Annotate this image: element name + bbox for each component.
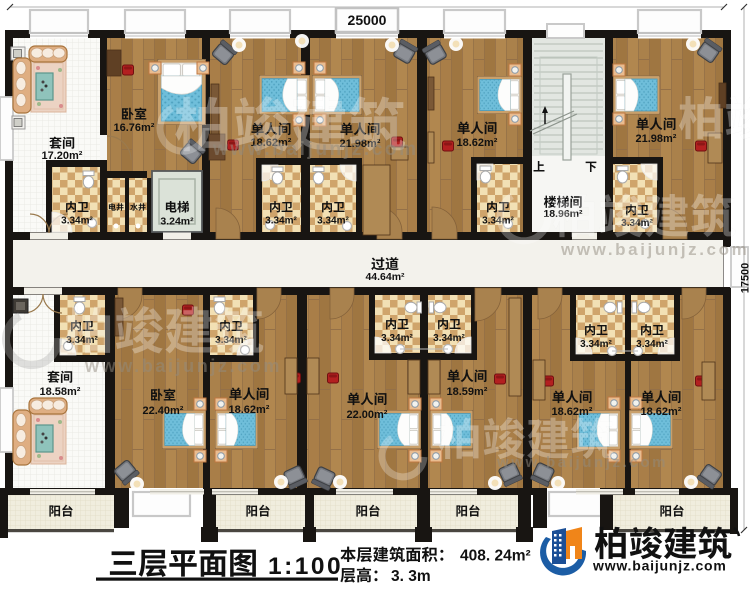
svg-text:www.baijunjz.com: www.baijunjz.com xyxy=(560,240,749,259)
svg-text:18.58m²: 18.58m² xyxy=(40,386,81,398)
svg-text:18.59m²: 18.59m² xyxy=(447,386,488,398)
svg-text:3.24m²: 3.24m² xyxy=(160,216,194,228)
svg-text:www.baijunjz.com: www.baijunjz.com xyxy=(212,139,419,160)
svg-text:408. 24m²: 408. 24m² xyxy=(460,548,531,565)
svg-text:3.34m²: 3.34m² xyxy=(580,339,612,350)
svg-text:3.34m²: 3.34m² xyxy=(317,216,349,227)
svg-text:www.baijunjz.com: www.baijunjz.com xyxy=(592,558,727,574)
svg-text:18.62m²: 18.62m² xyxy=(457,137,498,149)
svg-text:3. 3m: 3. 3m xyxy=(391,568,431,585)
svg-text:21.98m²: 21.98m² xyxy=(636,133,677,145)
svg-text:3.34m²: 3.34m² xyxy=(636,339,668,350)
svg-text:44.64m²: 44.64m² xyxy=(365,271,405,283)
svg-text:18.62m²: 18.62m² xyxy=(229,404,270,416)
svg-text:16.76m²: 16.76m² xyxy=(114,122,155,134)
svg-text:22.40m²: 22.40m² xyxy=(143,405,184,417)
svg-text:18.62m²: 18.62m² xyxy=(641,406,682,418)
svg-text:22.00m²: 22.00m² xyxy=(347,409,388,421)
svg-text:3.34m²: 3.34m² xyxy=(381,333,413,344)
svg-text:25000: 25000 xyxy=(348,12,387,28)
svg-text:18.62m²: 18.62m² xyxy=(552,406,593,418)
svg-text:1:100: 1:100 xyxy=(268,553,343,580)
svg-text:www.baijunjz.com: www.baijunjz.com xyxy=(496,454,668,471)
svg-text:17500: 17500 xyxy=(740,263,750,294)
svg-text:www.baijunjz.com: www.baijunjz.com xyxy=(84,356,282,376)
svg-text:17.20m²: 17.20m² xyxy=(42,150,83,162)
svg-text:3.34m²: 3.34m² xyxy=(433,333,465,344)
svg-text:3.34m²: 3.34m² xyxy=(265,216,297,227)
svg-text:3.34m²: 3.34m² xyxy=(61,216,93,227)
